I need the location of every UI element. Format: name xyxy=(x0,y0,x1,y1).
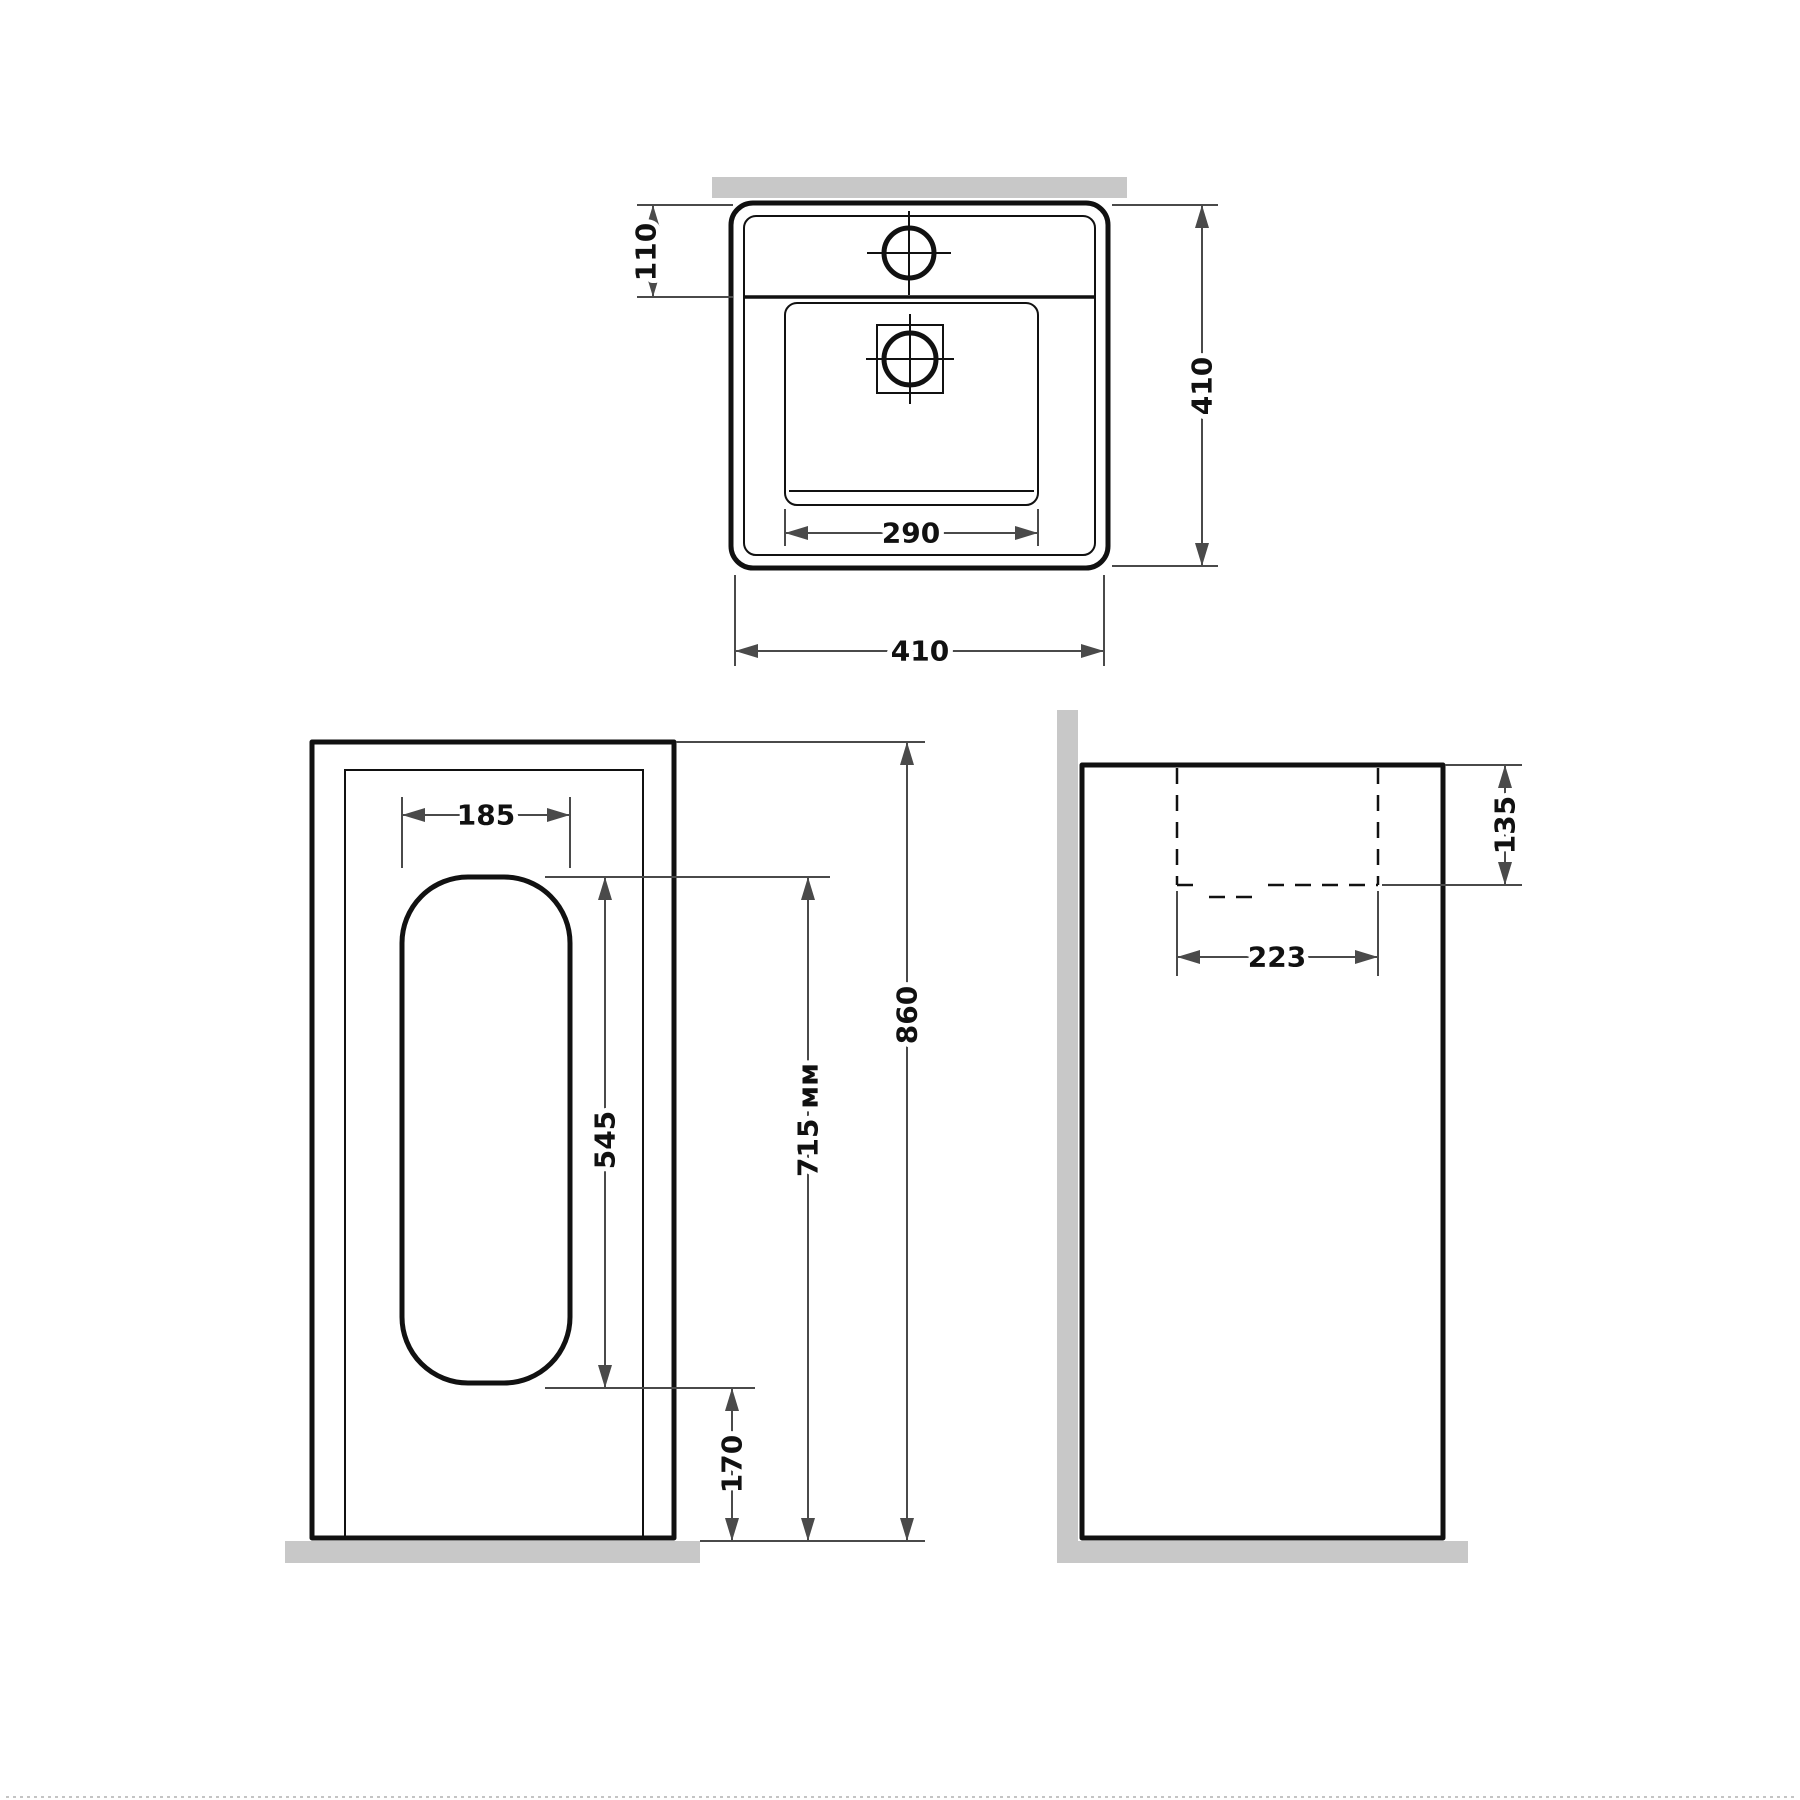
dim-cutout-floor-offset: 170 xyxy=(716,1388,749,1541)
dim-deck-depth: 110 xyxy=(630,205,734,297)
side-wall-surface xyxy=(1057,710,1078,1541)
dim-label-overall-depth: 410 xyxy=(1186,357,1219,415)
dim-label-cutout-height: 545 xyxy=(589,1111,622,1169)
dim-cutout-height: 545 xyxy=(589,877,622,1388)
dim-label-cutout-floor-offset: 170 xyxy=(716,1435,749,1493)
dim-label-drain-opening-width: 290 xyxy=(882,517,940,550)
top-view-wall-surface xyxy=(712,177,1127,198)
dim-cutout-width: 185 xyxy=(402,797,570,868)
front-floor-surface xyxy=(285,1541,700,1563)
dim-bowl-length: 223 xyxy=(1177,891,1378,976)
dim-label-overall-width: 410 xyxy=(891,635,949,668)
dim-label-bowl-depth: 135 xyxy=(1489,796,1522,854)
dim-label-rim-height: 715 мм xyxy=(792,1063,825,1177)
dim-drain-opening-width: 290 xyxy=(785,509,1038,550)
drawing-canvas: 110 290 410 410 xyxy=(0,0,1800,1800)
pedestal-side-outline xyxy=(1082,765,1443,1538)
front-view: 185 545 170 715 мм 860 xyxy=(285,742,925,1563)
dim-label-bowl-length: 223 xyxy=(1248,941,1306,974)
pedestal-washbasin-dimension-drawing: 110 290 410 410 xyxy=(0,0,1800,1800)
dim-label-overall-height: 860 xyxy=(891,986,924,1044)
dim-bowl-depth: 135 xyxy=(1382,765,1522,885)
side-floor-surface xyxy=(1057,1541,1468,1563)
dim-overall-height: 860 xyxy=(891,742,924,1541)
dim-rim-height: 715 мм xyxy=(792,877,825,1541)
top-view: 110 290 410 410 xyxy=(630,177,1219,668)
dim-overall-width: 410 xyxy=(735,575,1104,668)
dim-label-cutout-width: 185 xyxy=(457,799,515,832)
side-view: 223 135 xyxy=(1057,710,1522,1563)
dim-overall-depth: 410 xyxy=(1112,205,1219,566)
pedestal-cutout-outline xyxy=(402,877,570,1383)
dim-label-deck-depth: 110 xyxy=(630,223,663,281)
